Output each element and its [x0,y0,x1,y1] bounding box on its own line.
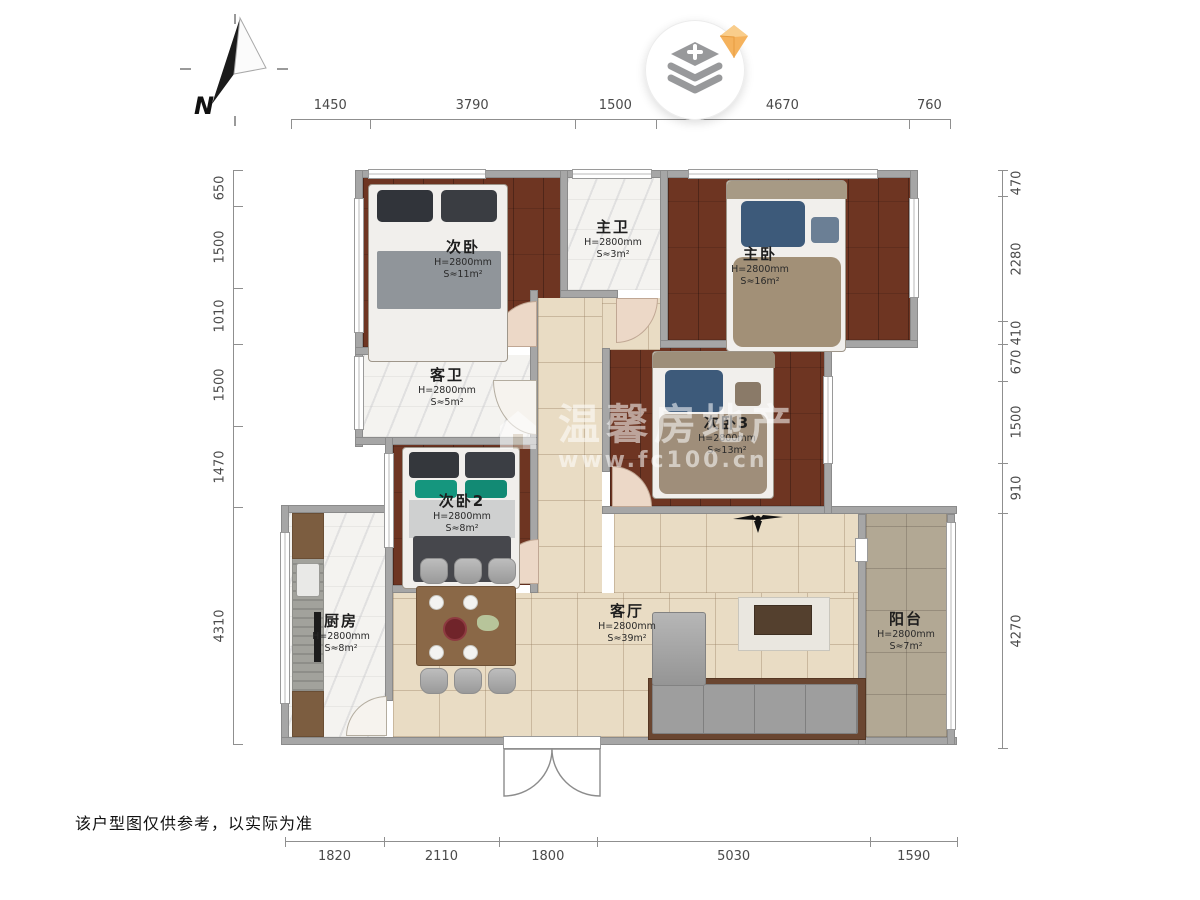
wall [660,170,668,348]
dim-label: 2280 [1010,242,1025,275]
dim-label: 1500 [213,368,228,401]
dim-tick [233,288,243,289]
dimension-right: 470228041067015009104270 [1001,170,1028,748]
wall [560,170,568,298]
dining-chair [488,558,516,584]
dim-label: 4270 [1010,614,1025,647]
dim-tick [950,119,951,129]
disclaimer-text: 该户型图仅供参考，以实际为准 [75,810,313,834]
dim-label: 410 [1010,320,1025,345]
dim-tick [656,119,657,129]
room-label-guest-bath: 客卫 H=2800mm S≈5m² [418,364,476,410]
window-small [855,538,868,562]
sofa-chaise [652,612,706,686]
dim-tick [998,196,1008,197]
sofa-seats [652,684,858,734]
dim-label: 910 [1010,476,1025,501]
entry-double-door [503,748,601,798]
dim-tick [370,119,371,129]
dim-tick [597,837,598,847]
bed-part [741,201,805,247]
dining-chair [420,558,448,584]
window [368,169,486,179]
kitchen-cabinet-bottom [292,691,324,737]
dimension-left: 65015001010150014704310 [207,170,234,744]
dim-tick [909,119,910,129]
dim-tick [384,837,385,847]
dining-chair [488,668,516,694]
bed-part [465,452,515,478]
dim-label: 1470 [213,450,228,483]
plate [429,595,444,610]
dim-label: 1820 [285,849,384,864]
room-label-master-bedroom: 主卧 H=2800mm S≈16m² [731,243,789,289]
floorplan-canvas: N 次卧 H=2800mm S≈11m² 主卫 H [0,0,1200,900]
bed-part [653,352,775,368]
dim-tick [575,119,576,129]
kitchen-sink [296,563,320,597]
window [909,198,919,298]
dim-tick [233,744,243,745]
dining-chair [454,558,482,584]
dim-label: 2110 [384,849,499,864]
plate [463,595,478,610]
dining-chair [454,668,482,694]
dim-tick [233,206,243,207]
dim-label: 670 [1010,350,1025,375]
dim-label: 1500 [1010,405,1025,438]
bed-part [727,181,847,199]
dim-line [1002,170,1003,748]
wall [560,290,618,298]
window [572,169,652,179]
dim-tick [291,119,292,129]
dim-line [291,119,950,120]
dim-label: 1010 [213,299,228,332]
dim-label: 470 [1010,171,1025,196]
window [354,198,364,333]
dim-label: 1500 [213,230,228,263]
room-label-bedroom-2b: 次卧2 H=2800mm S≈8m² [433,490,491,536]
window [280,532,290,704]
room-label-master-bath: 主卫 H=2800mm S≈3m² [584,216,642,262]
dim-tick [998,463,1008,464]
table-flowers [477,615,499,631]
dim-tick [998,170,1008,171]
plate [463,645,478,660]
dimension-top: 1450379015004670760 [291,98,950,124]
dim-label: 760 [909,98,950,113]
diamond-icon [717,24,751,60]
plate [429,645,444,660]
window [384,453,394,548]
ceiling-fan-icon [733,506,783,536]
dim-tick [233,426,243,427]
dim-label: 1500 [575,98,656,113]
room-label-balcony: 阳台 H=2800mm S≈7m² [877,608,935,654]
room-label-bedroom-2: 次卧 H=2800mm S≈11m² [434,236,492,282]
dim-label: 1450 [291,98,370,113]
wall [602,348,610,472]
wall [281,737,507,745]
dim-tick [285,837,286,847]
dim-tick [957,837,958,847]
fruit-bowl [443,617,467,641]
dim-label: 1800 [499,849,597,864]
dim-tick [998,381,1008,382]
wall [281,505,393,513]
bed-part [441,190,497,222]
dim-tick [499,837,500,847]
bed-part [811,217,839,243]
dim-label: 650 [213,175,228,200]
dining-chair [420,668,448,694]
dim-line [233,170,234,744]
dim-tick [998,321,1008,322]
dim-label: 3790 [370,98,575,113]
layers-badge-button[interactable] [645,20,745,120]
dim-tick [233,507,243,508]
floor-corridor [538,298,602,593]
dim-line [285,841,957,842]
dim-label: 5030 [597,849,871,864]
dimension-bottom: 18202110180050301590 [285,841,957,869]
room-label-kitchen: 厨房 H=2800mm S≈8m² [312,610,370,656]
window [688,169,878,179]
room-label-living-room: 客厅 H=2800mm S≈39m² [598,600,656,646]
window [354,356,364,430]
room-label-bedroom-3: 次卧3 H=2800mm S≈13m² [698,412,756,458]
bed-part [409,452,459,478]
dim-tick [233,344,243,345]
kitchen-cabinet-top [292,513,324,559]
dim-tick [998,513,1008,514]
dim-tick [998,748,1008,749]
bed-part [377,190,433,222]
wall [355,437,538,445]
dim-label: 4310 [213,609,228,642]
bed-part [735,382,761,406]
dining-table [416,586,516,666]
dim-tick [870,837,871,847]
window [946,522,956,730]
dim-label: 1590 [870,849,957,864]
dim-tick [998,344,1008,345]
tv-cabinet [754,605,812,635]
window [823,376,833,464]
bed-part [665,370,723,412]
dim-tick [233,170,243,171]
